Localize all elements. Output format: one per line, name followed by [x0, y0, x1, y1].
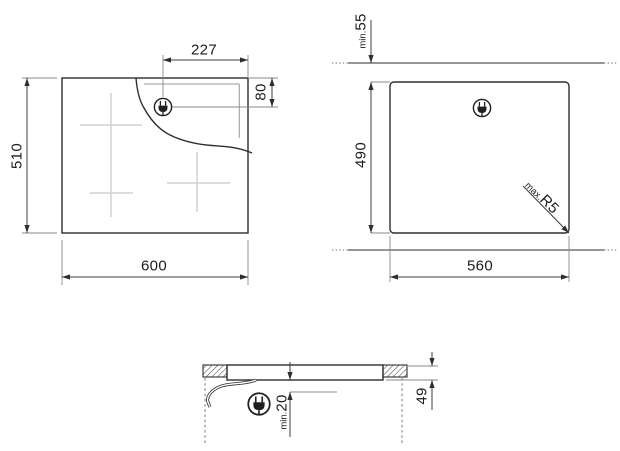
dimension-lines: [371, 20, 569, 277]
dim-label-depth-510: 510: [10, 143, 25, 169]
power-plug-icon: [248, 393, 270, 415]
cabinet-hidden-lines: [205, 378, 402, 443]
dimension-lines: [27, 60, 272, 277]
break-curve: [136, 78, 252, 153]
cutout-view-drawing: [332, 20, 617, 282]
installation-diagram: 510 600 227 80 min.55 490 560 max.R5 min…: [0, 0, 620, 451]
dim-prefix: min.: [358, 31, 369, 49]
worktop-section-left: [203, 365, 227, 377]
dim-label-cutout-depth-490: 490: [354, 142, 369, 168]
dim-value: 55: [353, 13, 370, 30]
dim-label-width-600: 600: [141, 259, 167, 274]
diagram-lineart: [0, 0, 620, 451]
hob-outline: [62, 78, 248, 233]
dimension-arrowheads: [368, 55, 569, 280]
worktop-section-right: [383, 365, 407, 377]
power-plug-icon: [473, 99, 490, 116]
extension-lines: [371, 82, 569, 282]
dim-label-clearance-below: min.20: [275, 394, 290, 429]
dim-label-cutout-width-560: 560: [467, 259, 493, 274]
dim-label-wall-clearance: min.55: [354, 13, 369, 48]
dim-prefix: min.: [279, 412, 290, 430]
dim-label-height-49: 49: [415, 387, 430, 404]
side-view-drawing: [203, 352, 438, 443]
dim-label-plug-80: 80: [254, 83, 269, 100]
dim-value: 20: [274, 394, 291, 411]
hob-body-section: [227, 365, 383, 380]
top-view-drawing: [22, 55, 278, 285]
dim-label-plug-227: 227: [191, 43, 217, 58]
power-plug-icon: [154, 98, 171, 115]
